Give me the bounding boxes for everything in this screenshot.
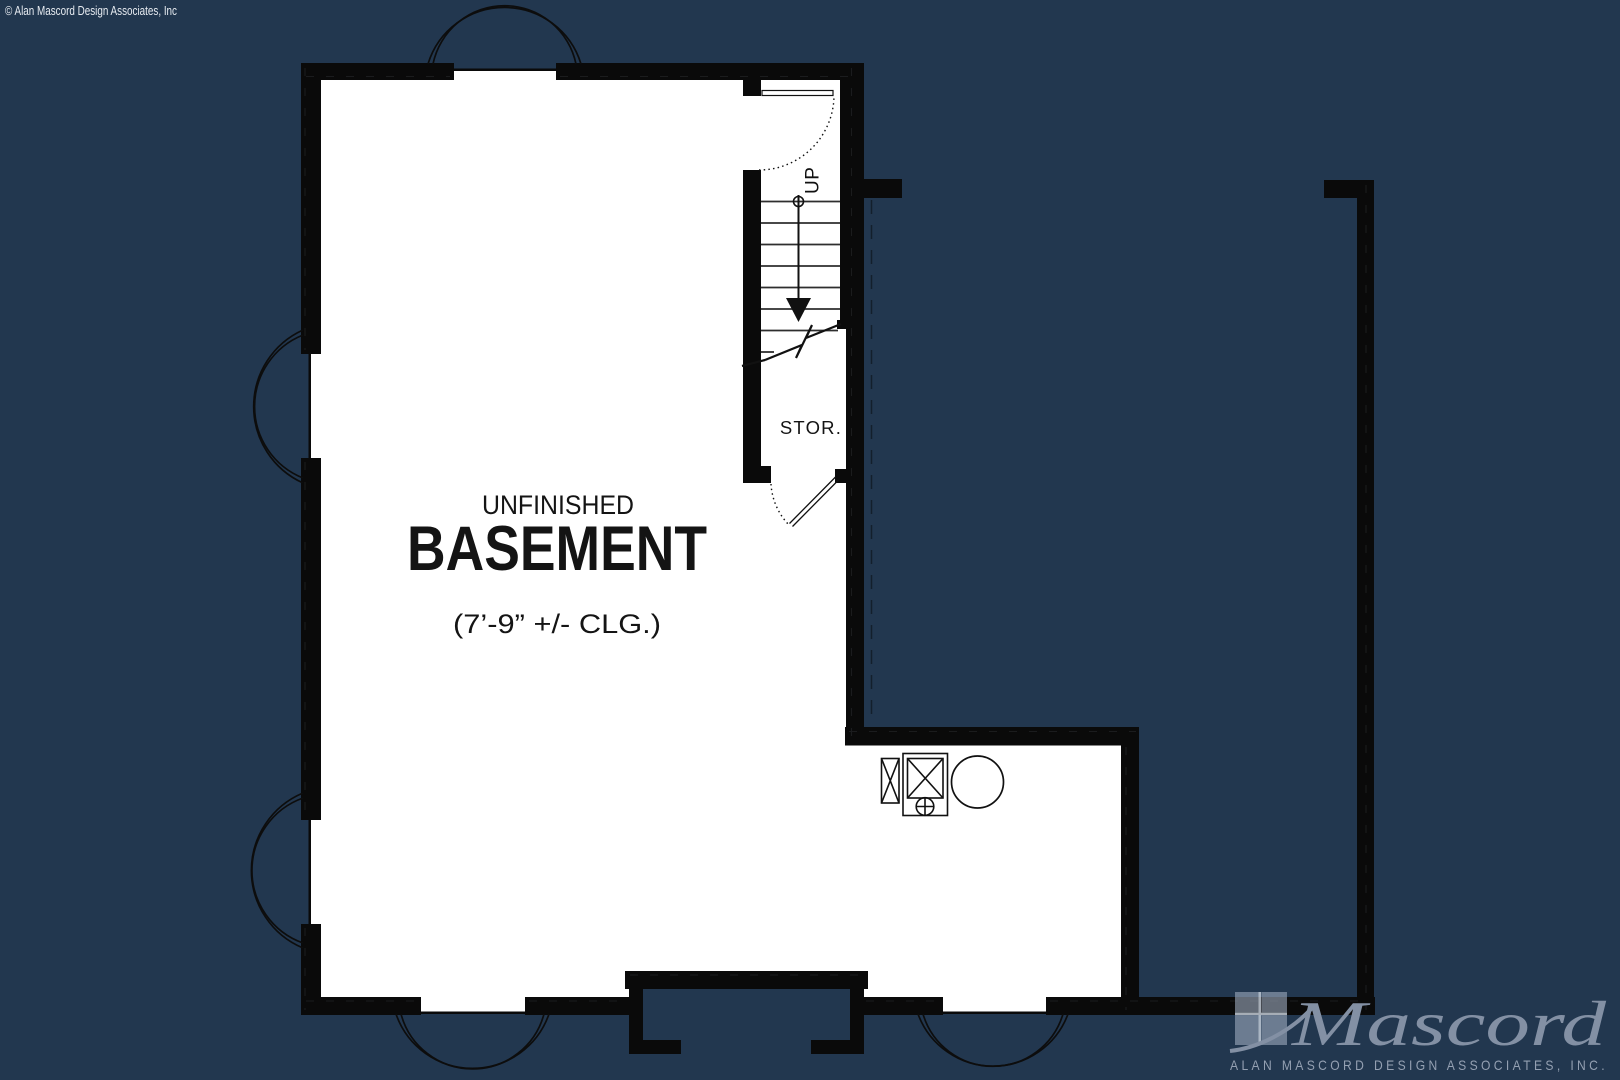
svg-text:UP: UP: [803, 167, 824, 194]
svg-text:(7’-9” +/- CLG.): (7’-9” +/- CLG.): [453, 609, 661, 639]
svg-text:Mascord: Mascord: [1291, 989, 1607, 1059]
svg-text:ALAN MASCORD DESIGN ASSOCIATES: ALAN MASCORD DESIGN ASSOCIATES, INC.: [1230, 1057, 1608, 1073]
svg-text:STOR.: STOR.: [780, 417, 842, 438]
svg-text:© Alan Mascord Design Associat: © Alan Mascord Design Associates, Inc: [5, 4, 177, 18]
svg-text:BASEMENT: BASEMENT: [407, 514, 707, 584]
